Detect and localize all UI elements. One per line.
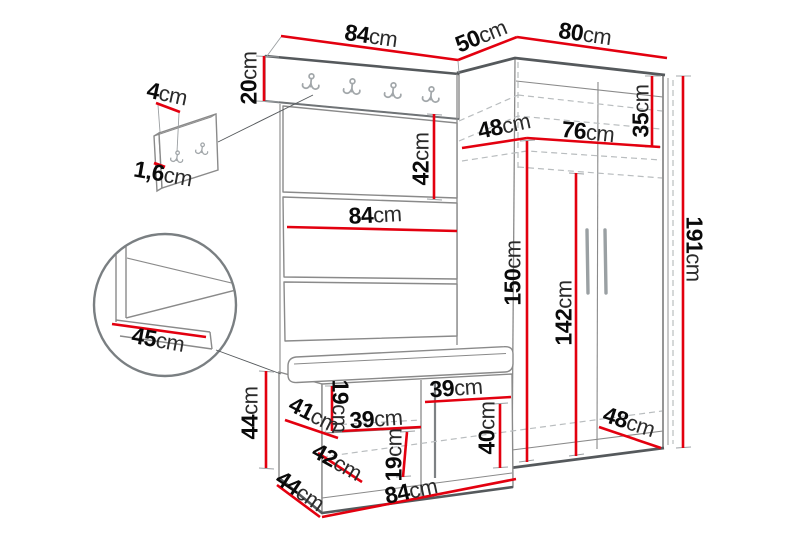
wardrobe-top-edge	[457, 58, 665, 75]
dim-wardrobe-top-side	[458, 37, 517, 60]
wall-panel-detail	[154, 114, 218, 191]
dim-wardrobe-top-width	[517, 37, 667, 58]
panel-front-face	[159, 114, 218, 188]
door-handle	[587, 230, 588, 293]
dim-wall-panel-width	[156, 103, 180, 112]
door-top-edge	[516, 81, 663, 97]
coat-rack-unit	[265, 56, 459, 373]
wardrobe-bottom-edge	[510, 448, 664, 468]
detail-callout-line	[216, 350, 281, 374]
dim-top-shelf-depth	[462, 138, 527, 148]
door-handle	[605, 230, 606, 293]
dim-top-shelf-width	[527, 138, 660, 147]
diagram-canvas	[0, 0, 800, 533]
door-gap	[597, 82, 598, 449]
furniture-dimension-diagram: 4cm1,6cm84cm20cm50cm80cm48cm76cm35cm42cm…	[0, 0, 800, 533]
wall-panel	[283, 197, 457, 279]
wall-panel	[283, 106, 457, 198]
dim-rack-width-top	[281, 36, 458, 60]
wall-panel	[284, 282, 457, 341]
magnifier-detail	[94, 234, 236, 376]
